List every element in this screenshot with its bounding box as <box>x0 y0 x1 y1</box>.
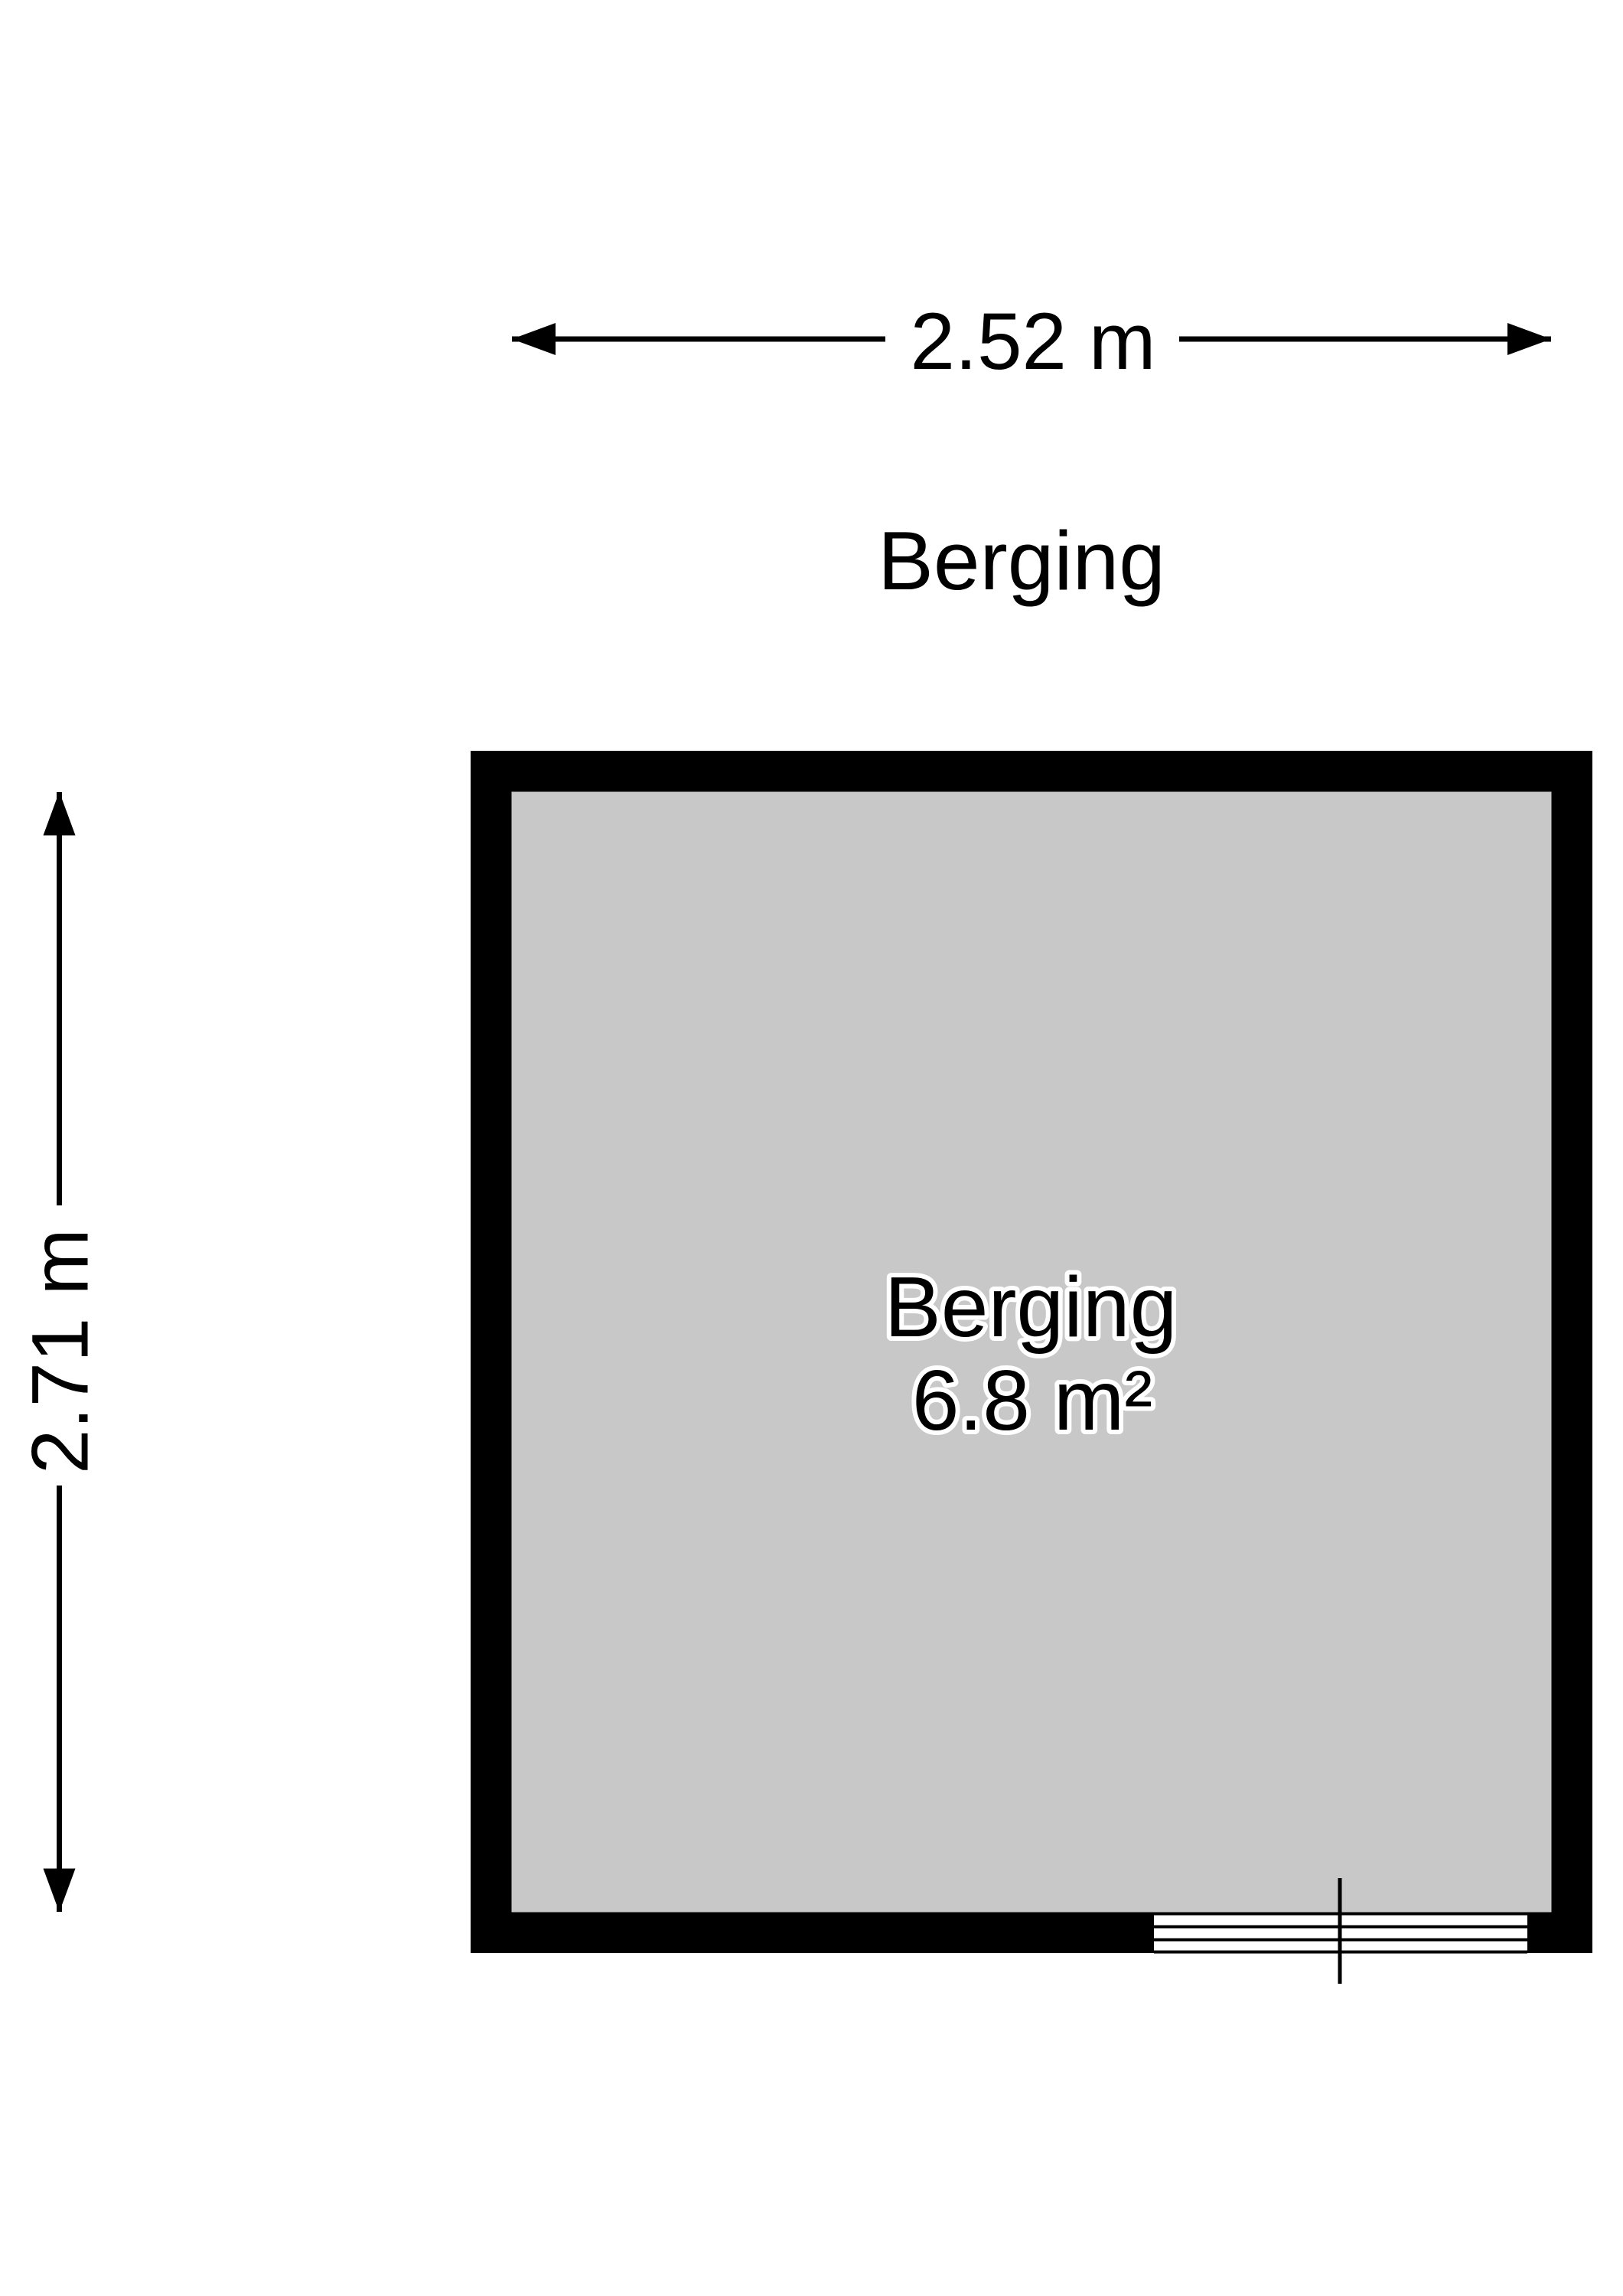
svg-text:Berging: Berging <box>878 514 1165 608</box>
svg-text:6.8 m²: 6.8 m² <box>912 1353 1153 1448</box>
svg-text:Berging: Berging <box>885 1260 1178 1355</box>
svg-text:2.52 m: 2.52 m <box>911 297 1156 386</box>
svg-text:2.71 m: 2.71 m <box>16 1228 106 1474</box>
